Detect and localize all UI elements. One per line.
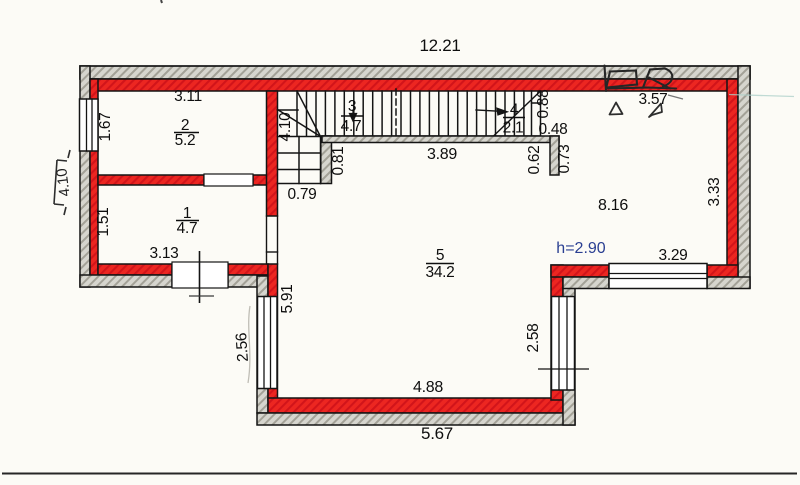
svg-text:0.73: 0.73 <box>556 145 573 174</box>
svg-text:0.81: 0.81 <box>330 147 347 176</box>
svg-text:4.10: 4.10 <box>53 168 73 198</box>
svg-text:5: 5 <box>436 247 444 264</box>
svg-text:3.11: 3.11 <box>174 88 202 105</box>
svg-text:5.67: 5.67 <box>421 424 453 443</box>
svg-text:12.21: 12.21 <box>419 36 460 55</box>
svg-text:h=2.90: h=2.90 <box>556 240 605 257</box>
svg-text:4.7: 4.7 <box>341 118 362 135</box>
svg-text:3.29: 3.29 <box>659 247 688 264</box>
svg-text:2.1: 2.1 <box>503 120 524 137</box>
svg-text:0.48: 0.48 <box>539 121 568 138</box>
svg-text:1.51: 1.51 <box>95 208 112 237</box>
svg-text:5.91: 5.91 <box>279 285 296 314</box>
svg-text:2.58: 2.58 <box>525 324 542 353</box>
svg-text:5.2: 5.2 <box>175 132 196 149</box>
svg-text:3.57: 3.57 <box>639 91 668 108</box>
svg-text:0.62: 0.62 <box>526 146 543 175</box>
svg-text:4: 4 <box>510 102 519 119</box>
svg-text:3.89: 3.89 <box>427 146 457 163</box>
svg-text:34.2: 34.2 <box>426 264 455 281</box>
svg-text:0.88: 0.88 <box>535 90 552 119</box>
svg-text:8.16: 8.16 <box>598 197 628 214</box>
svg-text:4.10: 4.10 <box>277 112 294 142</box>
svg-text:3.13: 3.13 <box>150 245 179 262</box>
svg-text:1.67: 1.67 <box>97 113 114 142</box>
svg-text:4.88: 4.88 <box>413 379 443 396</box>
svg-text:3: 3 <box>348 98 356 115</box>
svg-text:4.7: 4.7 <box>177 220 198 237</box>
svg-text:3.33: 3.33 <box>706 178 723 207</box>
svg-text:0.79: 0.79 <box>288 186 317 203</box>
